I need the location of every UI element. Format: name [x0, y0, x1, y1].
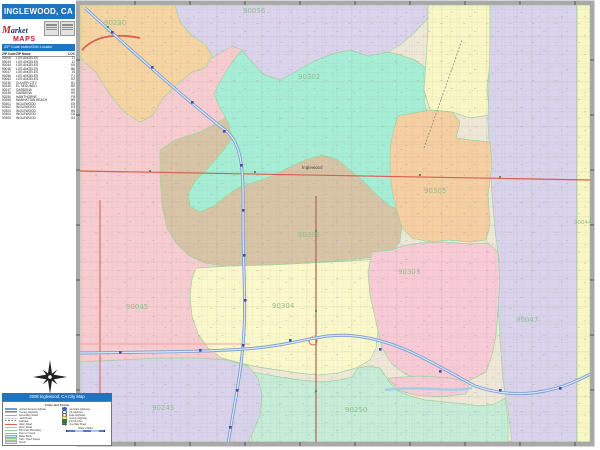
city-map-banner: 2008 Inglewood, CA City Map — [2, 393, 112, 401]
zip-label-90304: 90304 — [272, 302, 295, 310]
compass-rose-icon — [33, 360, 67, 394]
zip-label-90305: 90305 — [424, 187, 446, 195]
city-name-label: Inglewood — [302, 165, 323, 170]
scale-bar — [66, 430, 105, 432]
zip-label-90044: 90044 — [574, 220, 592, 226]
zip-table-row: 90305INGLEWOODG4 — [2, 117, 75, 121]
legend-title: Cities and Towns — [5, 403, 109, 407]
sw-airport-icon — [5, 441, 17, 444]
zip-label-90301: 90301 — [298, 231, 320, 239]
water-channel — [385, 388, 472, 390]
map-legend: Cities and Towns Limited Access HighwayP… — [2, 401, 112, 446]
zip-index-table: ZIP CodeZIP NameLOC90008LOS ANGELESJ1900… — [2, 53, 75, 120]
scale-bar-block: Scale in Miles — [62, 427, 109, 432]
logo-info-box-2 — [60, 21, 75, 36]
logo-initial: M — [2, 25, 11, 36]
sh-exit-icon — [62, 419, 67, 424]
zip-label-90250: 90250 — [345, 406, 367, 414]
zip-label-90245: 90245 — [152, 404, 174, 412]
logo-maps: MAPS — [13, 36, 42, 43]
logo-script-rest: arket — [11, 26, 28, 35]
zip-label-90047: 90047 — [516, 316, 538, 324]
zip-table-header: ZIP CodeZIP NameLOC — [2, 53, 75, 57]
zip-label-90302: 90302 — [298, 73, 320, 81]
legend-item: One-Way Road — [62, 423, 109, 426]
zip-label-90303: 90303 — [398, 268, 420, 276]
map-canvas: 9004590301903029005690230903049004790044… — [0, 0, 600, 450]
marketmaps-logo: Market MAPS — [2, 21, 75, 42]
legend-item: Airport — [5, 441, 62, 444]
logo-info-box-1 — [44, 21, 59, 36]
legend-column-left: Limited Access HighwayPrimary HighwaySec… — [5, 408, 62, 444]
zip-label-90230: 90230 — [104, 19, 126, 27]
zip-index-header: ZIP Code Index/Grid Locator — [2, 44, 75, 51]
zip-label-90045: 90045 — [126, 303, 148, 311]
logo-script: Market — [2, 26, 28, 35]
legend-column-right: Interstate HighwayUS HighwayState Highwa… — [62, 408, 109, 444]
page: { "header": { "title": "INGLEWOOD, CA" }… — [0, 0, 600, 450]
zip-label-90056: 90056 — [243, 7, 266, 15]
page-title: INGLEWOOD, CA — [2, 4, 75, 19]
